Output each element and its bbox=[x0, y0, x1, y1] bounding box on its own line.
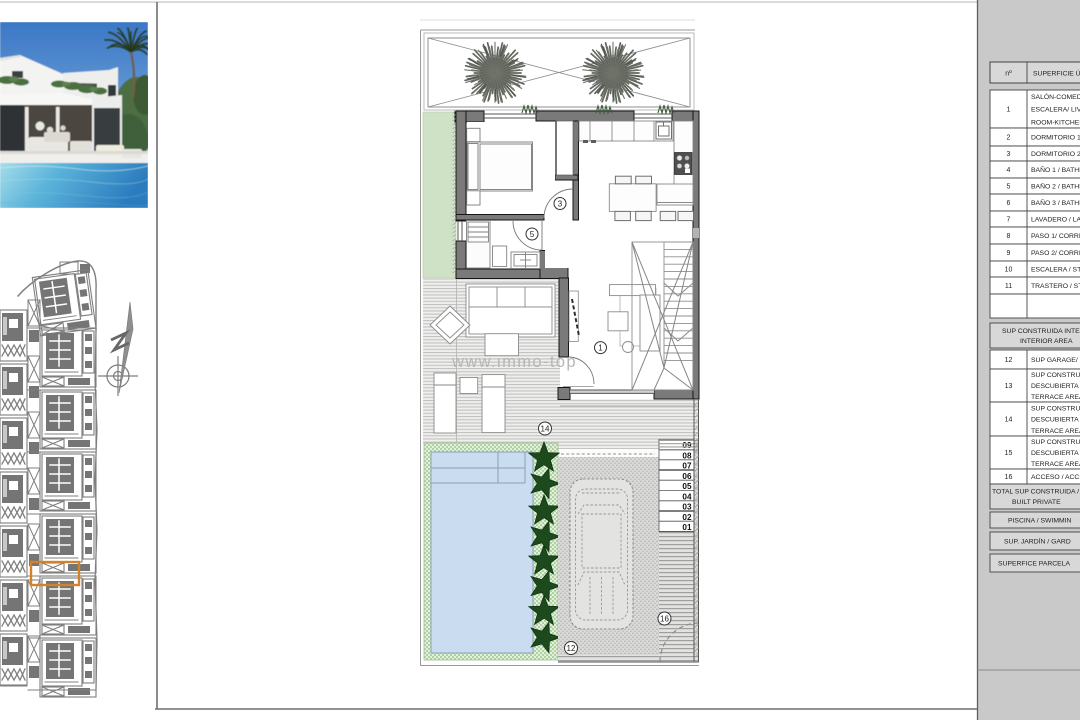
svg-text:DESCUBIERTA 3 /: DESCUBIERTA 3 / bbox=[1031, 450, 1080, 457]
svg-text:16: 16 bbox=[660, 614, 669, 623]
svg-text:5: 5 bbox=[530, 230, 535, 239]
svg-text:DESCUBIERTA 2 /: DESCUBIERTA 2 / bbox=[1031, 417, 1080, 424]
svg-text:09: 09 bbox=[682, 441, 692, 450]
svg-text:BAÑO 1 / BATHRO: BAÑO 1 / BATHRO bbox=[1031, 165, 1080, 174]
svg-text:DESCUBIERTA 1 /: DESCUBIERTA 1 / bbox=[1031, 383, 1080, 390]
svg-text:11: 11 bbox=[1005, 283, 1012, 290]
svg-text:10: 10 bbox=[1005, 267, 1013, 274]
svg-text:TOTAL SUP CONSTRUIDA /: TOTAL SUP CONSTRUIDA / bbox=[992, 489, 1079, 496]
svg-text:1: 1 bbox=[1007, 107, 1011, 114]
svg-text:13: 13 bbox=[1005, 383, 1013, 390]
svg-text:DORMITORIO 2 / B: DORMITORIO 2 / B bbox=[1031, 151, 1080, 158]
svg-text:PASO 1/ CORRIDO: PASO 1/ CORRIDO bbox=[1031, 233, 1080, 240]
svg-text:02: 02 bbox=[682, 513, 692, 522]
svg-text:BAÑO 3 / BATHRO: BAÑO 3 / BATHRO bbox=[1031, 198, 1080, 207]
svg-text:TERRACE AREA 1: TERRACE AREA 1 bbox=[1031, 394, 1080, 401]
svg-text:INTERIOR AREA: INTERIOR AREA bbox=[1020, 338, 1073, 345]
svg-text:BAÑO 2 / BATHRO: BAÑO 2 / BATHRO bbox=[1031, 182, 1080, 191]
svg-text:LAVADERO / LAUN: LAVADERO / LAUN bbox=[1031, 217, 1080, 224]
svg-text:SALÓN-COMEDOR-: SALÓN-COMEDOR- bbox=[1031, 92, 1080, 101]
svg-text:PISCINA / SWIMMIN: PISCINA / SWIMMIN bbox=[1008, 518, 1072, 525]
svg-text:08: 08 bbox=[682, 451, 692, 460]
svg-text:ROOM-KITCHEN-S: ROOM-KITCHEN-S bbox=[1031, 119, 1080, 126]
svg-text:4: 4 bbox=[1007, 167, 1011, 174]
svg-text:nº: nº bbox=[1005, 71, 1012, 78]
svg-text:BUILT PRIVATE: BUILT PRIVATE bbox=[1012, 499, 1061, 506]
svg-text:2: 2 bbox=[1007, 135, 1011, 142]
svg-text:05: 05 bbox=[682, 482, 692, 491]
svg-text:7: 7 bbox=[1007, 217, 1011, 224]
svg-text:ACCESO / ACCESS: ACCESO / ACCESS bbox=[1031, 474, 1080, 481]
svg-text:SUP CONSTRUIDA: SUP CONSTRUIDA bbox=[1031, 405, 1080, 412]
svg-text:16: 16 bbox=[1005, 474, 1013, 481]
svg-text:01: 01 bbox=[682, 523, 692, 532]
svg-text:3: 3 bbox=[1007, 151, 1011, 158]
svg-text:6: 6 bbox=[1007, 200, 1011, 207]
svg-text:SUP GARAGE/ GAR: SUP GARAGE/ GAR bbox=[1031, 357, 1080, 364]
svg-text:14: 14 bbox=[1005, 417, 1013, 424]
svg-text:www.immo-top: www.immo-top bbox=[451, 353, 577, 371]
svg-text:14: 14 bbox=[541, 424, 550, 433]
svg-text:SUPERFICIE ÚTIL /: SUPERFICIE ÚTIL / bbox=[1033, 69, 1080, 78]
svg-text:ESCALERA/ LIVING: ESCALERA/ LIVING bbox=[1031, 107, 1080, 114]
svg-text:12: 12 bbox=[1005, 357, 1013, 364]
svg-text:TERRACE AREA 2: TERRACE AREA 2 bbox=[1031, 428, 1080, 435]
svg-text:5: 5 bbox=[1007, 184, 1011, 191]
svg-text:SUP. JARDÍN / GARD: SUP. JARDÍN / GARD bbox=[1004, 537, 1071, 546]
svg-text:SUP CONSTRUIDA: SUP CONSTRUIDA bbox=[1031, 372, 1080, 379]
svg-text:PASO 2/ CORRIDO: PASO 2/ CORRIDO bbox=[1031, 250, 1080, 257]
svg-text:SUP CONSTRUIDA: SUP CONSTRUIDA bbox=[1031, 439, 1080, 446]
svg-text:ESCALERA / STAIR: ESCALERA / STAIR bbox=[1031, 267, 1080, 274]
svg-text:15: 15 bbox=[1005, 450, 1013, 457]
svg-text:SUPERFICE PARCELA: SUPERFICE PARCELA bbox=[998, 561, 1070, 568]
svg-text:TRASTERO / STOR: TRASTERO / STOR bbox=[1031, 283, 1080, 290]
svg-text:1: 1 bbox=[598, 343, 603, 352]
svg-text:04: 04 bbox=[682, 492, 692, 501]
svg-text:12: 12 bbox=[567, 644, 576, 653]
svg-text:DORMITORIO 1 / B: DORMITORIO 1 / B bbox=[1031, 135, 1080, 142]
svg-text:06: 06 bbox=[682, 472, 692, 481]
svg-text:03: 03 bbox=[682, 503, 692, 512]
svg-text:TERRACE AREA 3: TERRACE AREA 3 bbox=[1031, 461, 1080, 468]
svg-text:07: 07 bbox=[682, 462, 692, 471]
svg-text:8: 8 bbox=[1007, 233, 1011, 240]
svg-text:3: 3 bbox=[558, 199, 563, 208]
svg-text:9: 9 bbox=[1007, 250, 1011, 257]
svg-text:SUP CONSTRUIDA INTER: SUP CONSTRUIDA INTER bbox=[1002, 328, 1080, 335]
